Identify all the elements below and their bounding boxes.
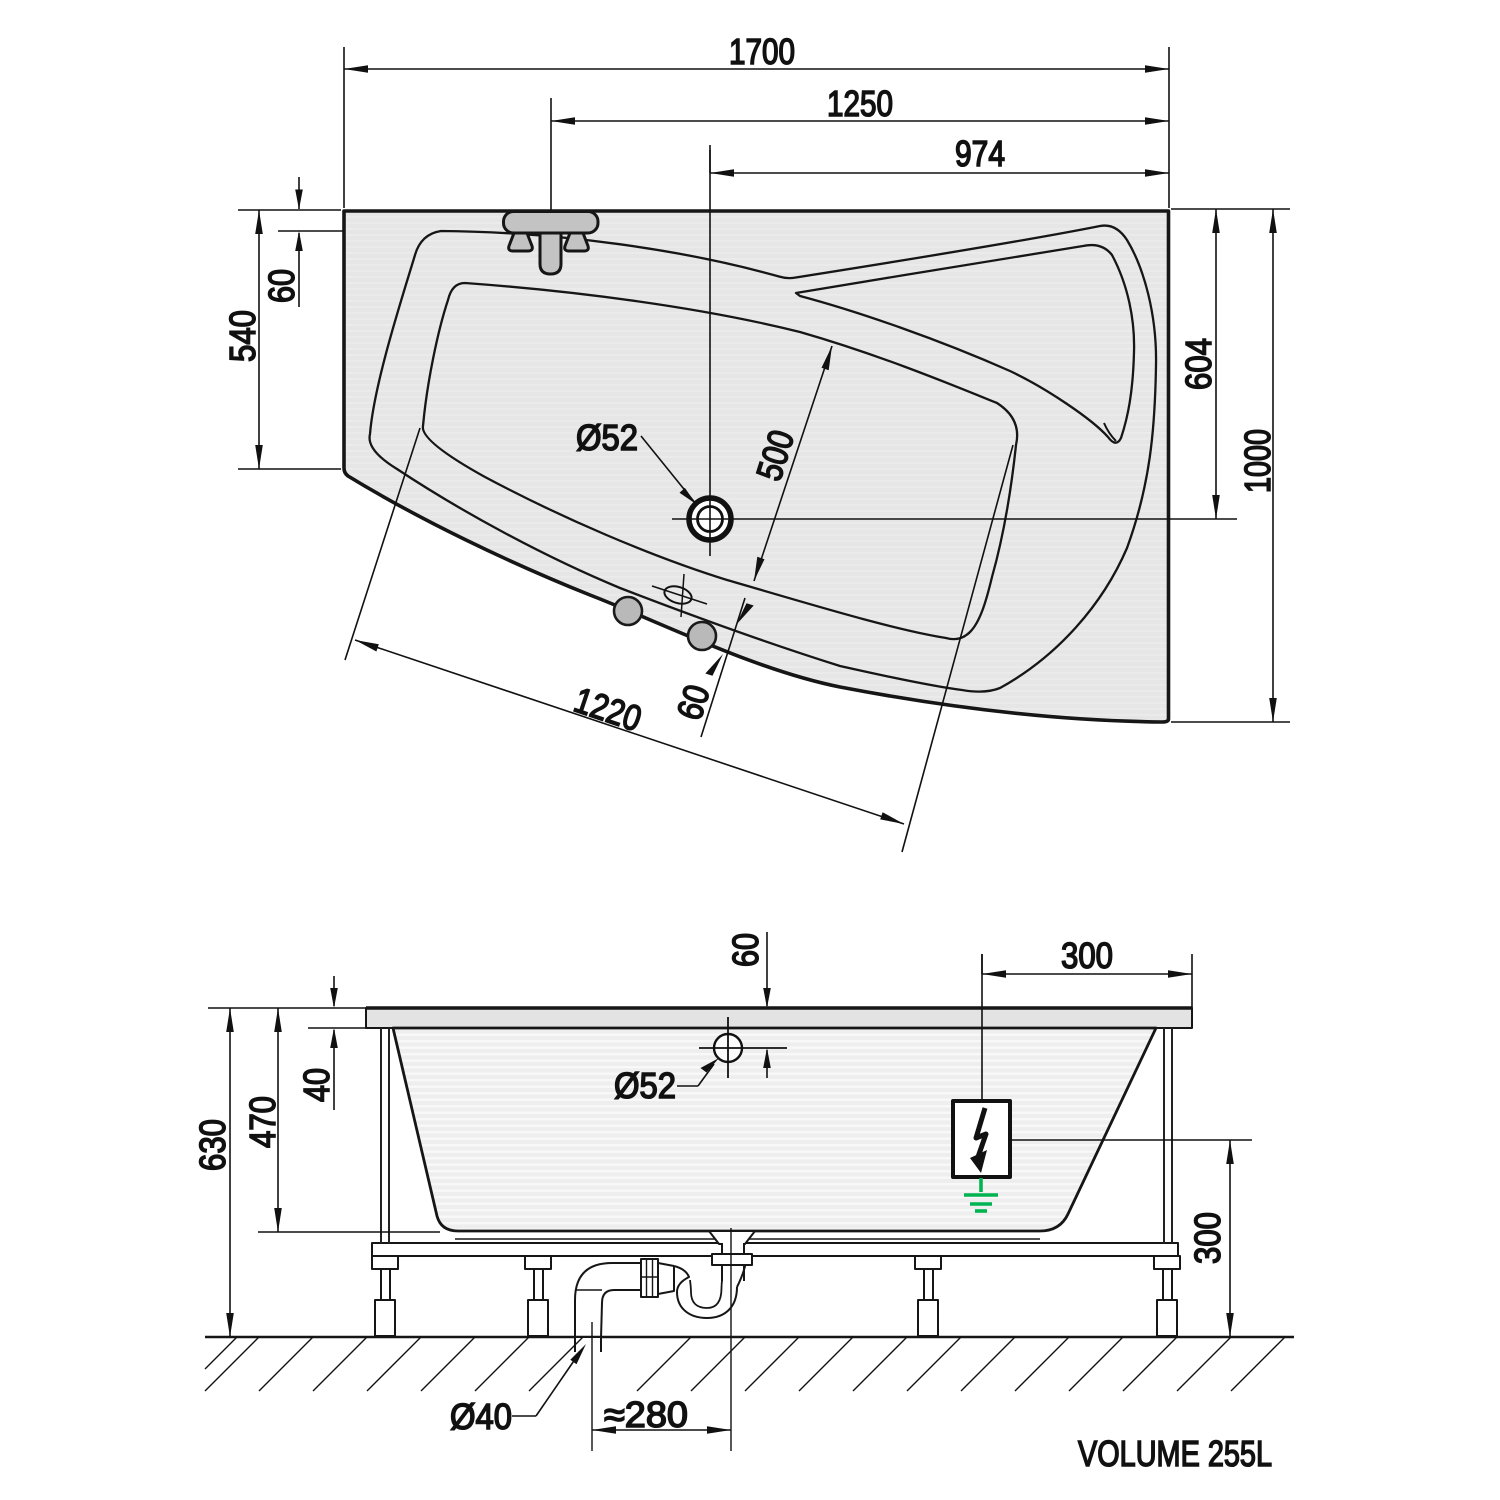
svg-text:40: 40 — [296, 1068, 337, 1102]
svg-text:60: 60 — [261, 269, 302, 303]
svg-text:1220: 1220 — [569, 679, 646, 739]
svg-text:≈280: ≈280 — [604, 1394, 688, 1435]
svg-text:1700: 1700 — [729, 31, 795, 72]
svg-text:300: 300 — [1061, 935, 1113, 976]
svg-text:630: 630 — [192, 1119, 233, 1171]
svg-text:540: 540 — [222, 310, 263, 362]
svg-text:604: 604 — [1178, 338, 1219, 390]
svg-text:1250: 1250 — [827, 83, 893, 124]
svg-text:Ø52: Ø52 — [614, 1065, 676, 1106]
svg-text:60: 60 — [725, 933, 766, 967]
svg-text:1000: 1000 — [1237, 429, 1278, 493]
svg-text:60: 60 — [668, 680, 717, 725]
svg-text:Ø40: Ø40 — [450, 1396, 512, 1437]
svg-text:300: 300 — [1187, 1212, 1228, 1264]
svg-text:Ø52: Ø52 — [576, 417, 638, 458]
svg-text:470: 470 — [242, 1096, 283, 1148]
svg-text:974: 974 — [955, 133, 1005, 174]
svg-text:VOLUME 255L: VOLUME 255L — [1078, 1433, 1272, 1474]
